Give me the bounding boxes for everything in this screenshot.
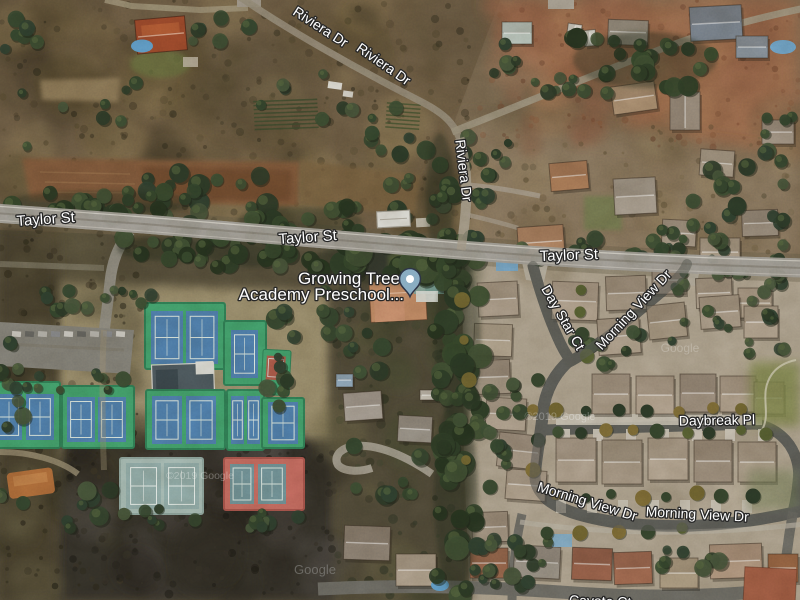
svg-text:Cayote Ct: Cayote Ct (569, 592, 632, 600)
svg-text:©2019 Google: ©2019 Google (524, 411, 595, 423)
svg-text:Taylor St: Taylor St (539, 246, 599, 265)
svg-text:Daybreak Pl: Daybreak Pl (679, 411, 756, 428)
svg-text:©2019 Google: ©2019 Google (166, 470, 234, 482)
svg-text:Google: Google (661, 341, 700, 355)
svg-text:Academy Preschool...: Academy Preschool... (239, 285, 404, 304)
svg-text:Google: Google (294, 562, 336, 577)
